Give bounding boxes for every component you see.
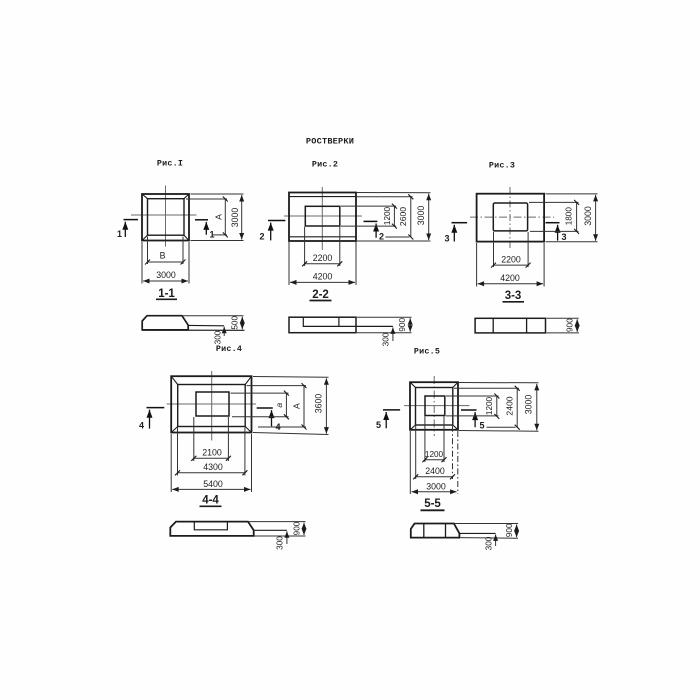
svg-text:Рис.4: Рис.4 <box>216 344 242 354</box>
svg-text:2600: 2600 <box>398 207 408 226</box>
svg-text:5-5: 5-5 <box>424 498 441 510</box>
svg-text:1200: 1200 <box>425 450 444 459</box>
svg-text:1200: 1200 <box>485 396 494 415</box>
svg-text:4: 4 <box>139 421 144 431</box>
svg-text:3000: 3000 <box>426 481 446 491</box>
svg-text:2400: 2400 <box>425 466 445 476</box>
svg-text:5400: 5400 <box>203 479 223 489</box>
svg-text:900: 900 <box>566 318 575 332</box>
svg-text:3000: 3000 <box>524 395 534 415</box>
svg-text:2-2: 2-2 <box>312 289 329 301</box>
svg-text:5: 5 <box>480 421 485 431</box>
svg-text:5: 5 <box>376 420 381 430</box>
svg-text:1200: 1200 <box>383 206 392 225</box>
svg-text:A: A <box>214 214 224 220</box>
svg-text:2: 2 <box>260 232 265 242</box>
svg-text:300: 300 <box>276 536 285 550</box>
svg-text:4-4: 4-4 <box>202 495 219 507</box>
svg-text:300: 300 <box>484 536 493 550</box>
svg-text:3000: 3000 <box>156 270 176 280</box>
svg-text:Рис.I: Рис.I <box>157 159 183 169</box>
svg-text:Рис.2: Рис.2 <box>312 160 338 170</box>
svg-text:Рис.5: Рис.5 <box>414 347 440 357</box>
svg-text:2: 2 <box>379 232 384 242</box>
svg-text:900: 900 <box>292 521 301 535</box>
svg-text:4200: 4200 <box>500 273 520 283</box>
svg-text:Рис.3: Рис.3 <box>489 161 515 171</box>
svg-text:1: 1 <box>117 229 122 239</box>
svg-text:1-1: 1-1 <box>158 288 175 300</box>
svg-text:2200: 2200 <box>313 253 333 263</box>
svg-text:РОСТВЕРКИ: РОСТВЕРКИ <box>306 137 354 147</box>
svg-text:4300: 4300 <box>203 462 223 472</box>
svg-text:2200: 2200 <box>501 254 521 264</box>
svg-text:1800: 1800 <box>565 207 574 226</box>
svg-text:B: B <box>160 251 166 261</box>
svg-text:4200: 4200 <box>313 272 333 282</box>
svg-text:3000: 3000 <box>416 206 426 226</box>
svg-text:3000: 3000 <box>583 206 593 226</box>
svg-text:3: 3 <box>445 234 450 244</box>
svg-text:500: 500 <box>230 316 239 330</box>
svg-text:3: 3 <box>562 232 567 242</box>
svg-text:3600: 3600 <box>313 394 323 414</box>
svg-text:2400: 2400 <box>504 396 514 415</box>
svg-text:A: A <box>292 403 302 409</box>
svg-text:300: 300 <box>382 332 391 346</box>
svg-text:300: 300 <box>214 330 223 344</box>
svg-text:900: 900 <box>398 318 407 332</box>
svg-text:3000: 3000 <box>230 208 240 228</box>
svg-text:2100: 2100 <box>202 448 222 458</box>
svg-text:a: a <box>274 403 284 408</box>
svg-text:900: 900 <box>505 523 514 537</box>
svg-text:3-3: 3-3 <box>505 290 522 302</box>
